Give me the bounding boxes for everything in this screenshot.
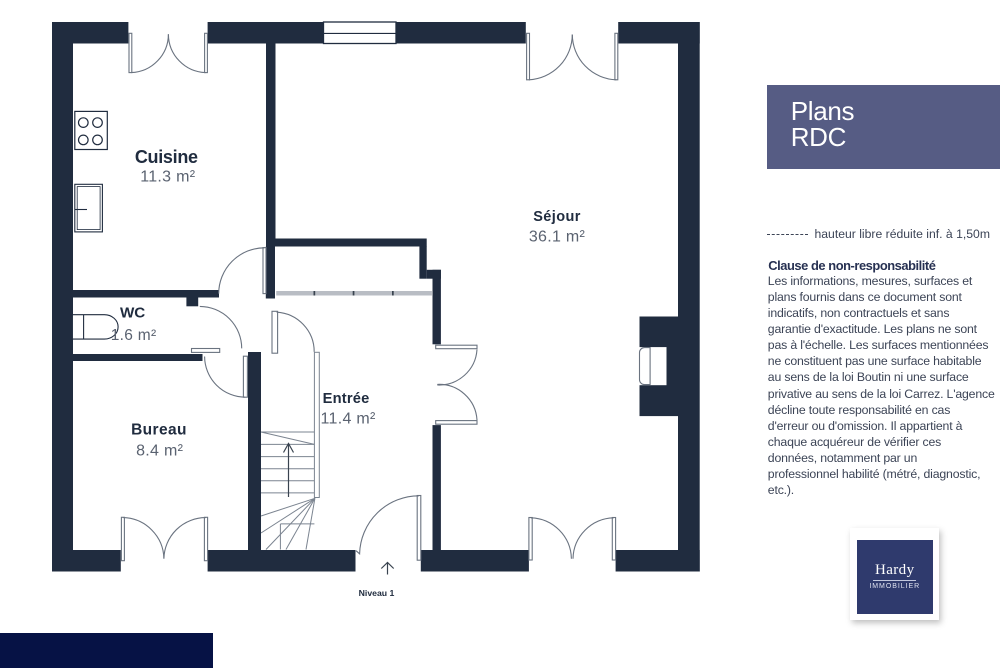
svg-text:1.6 m²: 1.6 m² [111, 327, 157, 344]
svg-text:Séjour: Séjour [533, 209, 581, 225]
svg-text:8.4 m²: 8.4 m² [136, 443, 184, 460]
svg-text:11.3 m²: 11.3 m² [140, 168, 196, 185]
svg-text:WC: WC [120, 304, 145, 321]
svg-text:Niveau 1: Niveau 1 [359, 588, 395, 598]
svg-text:Cuisine: Cuisine [135, 147, 198, 167]
svg-text:Bureau: Bureau [131, 421, 187, 438]
svg-text:Entrée: Entrée [323, 391, 370, 407]
svg-text:36.1 m²: 36.1 m² [529, 228, 586, 245]
svg-text:11.4 m²: 11.4 m² [321, 411, 377, 428]
